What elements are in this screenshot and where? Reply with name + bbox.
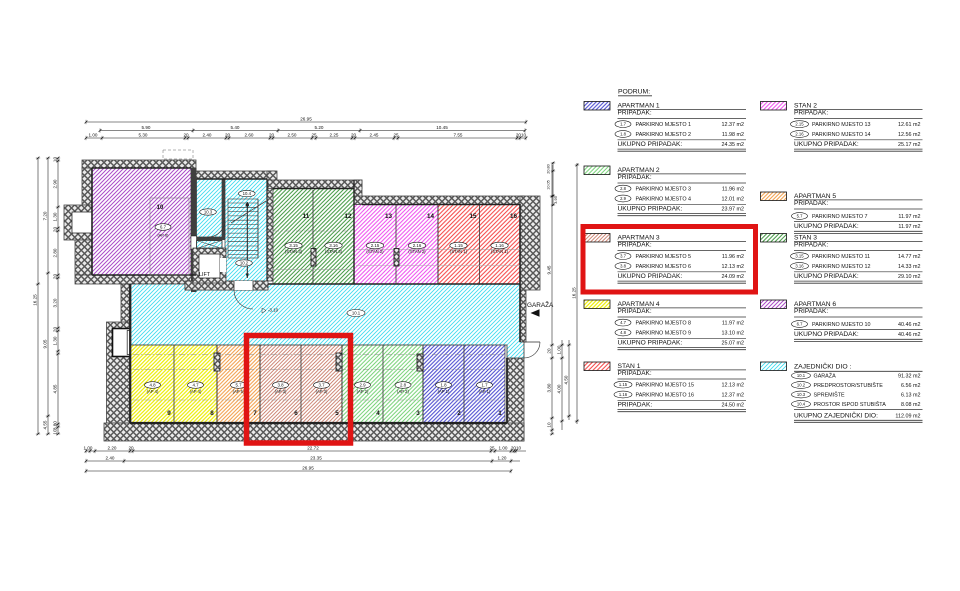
svg-text:2.20: 2.20 bbox=[108, 445, 117, 450]
svg-text:2010: 2010 bbox=[511, 445, 522, 450]
svg-text:PARKIRNO MJESTO 1: PARKIRNO MJESTO 1 bbox=[636, 122, 692, 128]
svg-text:12.37 m2: 12.37 m2 bbox=[722, 122, 744, 128]
svg-text:22.72: 22.72 bbox=[307, 445, 319, 450]
svg-text:5.7: 5.7 bbox=[235, 383, 242, 388]
svg-text:2.45: 2.45 bbox=[370, 132, 379, 137]
svg-text:25.17 m2: 25.17 m2 bbox=[898, 142, 920, 148]
svg-text:4.7: 4.7 bbox=[620, 320, 626, 325]
svg-text:20: 20 bbox=[546, 348, 551, 354]
svg-text:11.96 m2: 11.96 m2 bbox=[722, 187, 744, 193]
svg-text:(STAN 2): (STAN 2) bbox=[408, 249, 426, 254]
svg-text:3.80: 3.80 bbox=[546, 383, 551, 392]
svg-text:(AP 4): (AP 4) bbox=[190, 389, 202, 394]
svg-text:(AP 5): (AP 5) bbox=[233, 389, 245, 394]
svg-text:UKUPNO ZAJEDNIČKI DIO:: UKUPNO ZAJEDNIČKI DIO: bbox=[794, 411, 878, 420]
svg-text:24.35 m2: 24.35 m2 bbox=[722, 142, 744, 148]
svg-text:LIFT: LIFT bbox=[199, 272, 211, 278]
svg-text:10.3: 10.3 bbox=[797, 392, 806, 397]
svg-text:4.8: 4.8 bbox=[149, 383, 156, 388]
svg-text:2.40: 2.40 bbox=[106, 455, 115, 460]
svg-text:20: 20 bbox=[269, 132, 275, 137]
svg-text:(AP 3): (AP 3) bbox=[275, 389, 287, 394]
svg-text:12.13 m2: 12.13 m2 bbox=[722, 264, 744, 270]
svg-text:(STAN 2): (STAN 2) bbox=[366, 249, 384, 254]
svg-text:10.4: 10.4 bbox=[797, 402, 806, 407]
svg-text:16.25: 16.25 bbox=[32, 294, 37, 306]
svg-text:PRIPADAK:: PRIPADAK: bbox=[794, 200, 828, 207]
svg-text:20: 20 bbox=[225, 132, 231, 137]
svg-text:3.7: 3.7 bbox=[318, 383, 325, 388]
svg-text:4.85: 4.85 bbox=[52, 384, 57, 393]
svg-text:UKUPNO PRIPADAK:: UKUPNO PRIPADAK: bbox=[794, 331, 859, 338]
svg-text:2.15: 2.15 bbox=[371, 243, 380, 248]
svg-text:(AP 2): (AP 2) bbox=[357, 389, 369, 394]
svg-text:23.35: 23.35 bbox=[310, 455, 322, 460]
svg-text:PARKIRNO MJESTO 10: PARKIRNO MJESTO 10 bbox=[812, 322, 871, 328]
svg-text:PARKIRNO MJESTO 11: PARKIRNO MJESTO 11 bbox=[812, 254, 870, 260]
svg-text:PARKIRNO MJESTO 13: PARKIRNO MJESTO 13 bbox=[812, 122, 871, 128]
svg-text:7.55: 7.55 bbox=[454, 132, 463, 137]
svg-text:1.30: 1.30 bbox=[52, 336, 57, 345]
svg-text:7.20: 7.20 bbox=[42, 211, 47, 220]
svg-text:16: 16 bbox=[510, 213, 518, 220]
svg-text:10: 10 bbox=[546, 422, 551, 428]
svg-text:3.16: 3.16 bbox=[329, 243, 338, 248]
svg-text:GARAŽA: GARAŽA bbox=[814, 372, 837, 380]
svg-text:9.05: 9.05 bbox=[42, 339, 47, 348]
svg-text:(STAN 1): (STAN 1) bbox=[450, 249, 468, 254]
svg-text:PARKIRNO MJESTO 6: PARKIRNO MJESTO 6 bbox=[636, 264, 692, 270]
svg-text:16.25: 16.25 bbox=[571, 287, 576, 299]
svg-text:PRIPADAK:: PRIPADAK: bbox=[794, 308, 828, 315]
svg-text:20: 20 bbox=[183, 132, 189, 137]
svg-text:6.13 m2: 6.13 m2 bbox=[901, 393, 920, 399]
svg-text:(AP 6): (AP 6) bbox=[158, 233, 170, 238]
svg-text:10.2: 10.2 bbox=[240, 261, 249, 266]
svg-text:APARTMAN 5: APARTMAN 5 bbox=[794, 193, 836, 200]
svg-text:1.20: 1.20 bbox=[498, 455, 507, 460]
svg-text:25: 25 bbox=[489, 445, 495, 450]
svg-text:2.90: 2.90 bbox=[52, 179, 57, 188]
svg-text:1.7: 1.7 bbox=[620, 122, 626, 127]
svg-text:UKUPNO PRIPADAK:: UKUPNO PRIPADAK: bbox=[794, 223, 859, 230]
svg-text:PARKIRNO MJESTO 9: PARKIRNO MJESTO 9 bbox=[636, 331, 692, 337]
svg-text:PARKIRNO MJESTO 2: PARKIRNO MJESTO 2 bbox=[636, 132, 692, 138]
svg-text:4.8: 4.8 bbox=[620, 330, 626, 335]
svg-text:26.95: 26.95 bbox=[302, 465, 314, 470]
svg-text:20: 20 bbox=[128, 445, 134, 450]
svg-text:3.15: 3.15 bbox=[795, 254, 804, 259]
svg-text:11.96 m2: 11.96 m2 bbox=[722, 254, 744, 260]
svg-text:14: 14 bbox=[427, 213, 435, 220]
svg-text:PARKIRNO MJESTO 3: PARKIRNO MJESTO 3 bbox=[636, 187, 692, 193]
svg-text:12.56 m2: 12.56 m2 bbox=[898, 132, 920, 138]
svg-text:12.61 m2: 12.61 m2 bbox=[898, 122, 920, 128]
svg-text:6: 6 bbox=[294, 410, 298, 417]
svg-text:14.33 m2: 14.33 m2 bbox=[898, 264, 920, 270]
svg-text:PODRUM:: PODRUM: bbox=[618, 89, 650, 96]
svg-text:11: 11 bbox=[303, 213, 310, 220]
svg-text:29.10 m2: 29.10 m2 bbox=[898, 274, 920, 280]
svg-text:7: 7 bbox=[253, 410, 257, 417]
svg-text:(AP 1): (AP 1) bbox=[438, 389, 450, 394]
svg-text:11.98 m2: 11.98 m2 bbox=[722, 132, 744, 138]
svg-text:PARKIRNO MJESTO 4: PARKIRNO MJESTO 4 bbox=[636, 197, 692, 203]
svg-text:(AP 1): (AP 1) bbox=[479, 389, 491, 394]
svg-text:1.16: 1.16 bbox=[495, 243, 504, 248]
svg-text:15: 15 bbox=[469, 213, 477, 220]
svg-text:2: 2 bbox=[457, 410, 461, 417]
svg-text:PRIPADAK:: PRIPADAK: bbox=[618, 308, 652, 315]
svg-text:6.7: 6.7 bbox=[797, 322, 803, 327]
svg-text:91.32 m2: 91.32 m2 bbox=[898, 374, 920, 380]
svg-text:1.15: 1.15 bbox=[454, 243, 463, 248]
svg-text:25: 25 bbox=[311, 132, 317, 137]
svg-text:13: 13 bbox=[385, 213, 393, 220]
svg-text:(AP 3): (AP 3) bbox=[316, 389, 328, 394]
svg-text:10.4: 10.4 bbox=[243, 191, 252, 196]
svg-text:2.80: 2.80 bbox=[52, 248, 57, 257]
svg-text:20: 20 bbox=[52, 274, 57, 280]
svg-text:1.00: 1.00 bbox=[499, 445, 508, 450]
svg-text:10.2: 10.2 bbox=[797, 383, 806, 388]
svg-text:1.16: 1.16 bbox=[619, 392, 628, 397]
svg-text:-3.10: -3.10 bbox=[268, 308, 279, 313]
svg-text:1.15: 1.15 bbox=[619, 382, 628, 387]
svg-text:3.95: 3.95 bbox=[554, 196, 558, 203]
svg-text:1: 1 bbox=[498, 410, 502, 417]
svg-text:3.20: 3.20 bbox=[52, 298, 57, 307]
svg-text:PRIPADAK:: PRIPADAK: bbox=[794, 242, 828, 249]
svg-text:STAN 3: STAN 3 bbox=[794, 234, 817, 241]
svg-text:PROSTOR ISPOD STUBIŠTA: PROSTOR ISPOD STUBIŠTA bbox=[814, 401, 887, 408]
svg-text:3.80: 3.80 bbox=[52, 421, 57, 430]
svg-text:24.50 m2: 24.50 m2 bbox=[722, 402, 744, 408]
svg-text:2.9: 2.9 bbox=[359, 383, 366, 388]
svg-text:(AP 2): (AP 2) bbox=[397, 389, 409, 394]
svg-text:2.15: 2.15 bbox=[795, 122, 804, 127]
svg-text:11.97 m2: 11.97 m2 bbox=[898, 224, 920, 230]
svg-text:APARTMAN 1: APARTMAN 1 bbox=[618, 102, 660, 109]
svg-text:10: 10 bbox=[157, 205, 164, 211]
svg-text:2.25: 2.25 bbox=[330, 132, 339, 137]
svg-text:2.40: 2.40 bbox=[203, 132, 212, 137]
svg-text:1.7: 1.7 bbox=[481, 383, 488, 388]
svg-text:PRIPADAK:: PRIPADAK: bbox=[618, 242, 652, 249]
svg-text:APARTMAN 3: APARTMAN 3 bbox=[618, 234, 660, 241]
svg-text:PARKIRNO MJESTO 16: PARKIRNO MJESTO 16 bbox=[636, 393, 695, 399]
svg-text:10.1: 10.1 bbox=[352, 311, 361, 316]
svg-text:4.7: 4.7 bbox=[192, 383, 199, 388]
svg-text:PRIPADAK:: PRIPADAK: bbox=[794, 110, 828, 117]
svg-text:10.1: 10.1 bbox=[797, 373, 806, 378]
svg-text:4.00: 4.00 bbox=[556, 384, 561, 393]
svg-text:1.00: 1.00 bbox=[556, 345, 561, 354]
svg-text:(STAN 3): (STAN 3) bbox=[325, 249, 343, 254]
svg-text:26.95: 26.95 bbox=[300, 116, 312, 121]
svg-text:PREDPROSTOR/STUBIŠTE: PREDPROSTOR/STUBIŠTE bbox=[814, 382, 884, 389]
svg-text:23.97 m2: 23.97 m2 bbox=[722, 206, 744, 212]
svg-text:APARTMAN 2: APARTMAN 2 bbox=[618, 167, 660, 174]
svg-text:5.20: 5.20 bbox=[315, 125, 324, 130]
svg-text:1.00: 1.00 bbox=[89, 132, 98, 137]
svg-text:11.97 m2: 11.97 m2 bbox=[722, 321, 744, 327]
svg-text:12.37 m2: 12.37 m2 bbox=[722, 393, 744, 399]
svg-text:6.56 m2: 6.56 m2 bbox=[901, 383, 920, 389]
svg-text:APARTMAN 4: APARTMAN 4 bbox=[618, 301, 660, 308]
svg-text:4: 4 bbox=[376, 410, 380, 417]
svg-text:UKUPNO PRIPADAK:: UKUPNO PRIPADAK: bbox=[618, 205, 683, 212]
svg-text:UKUPNO PRIPADAK:: UKUPNO PRIPADAK: bbox=[794, 273, 859, 280]
svg-text:3: 3 bbox=[416, 410, 420, 417]
svg-text:1.8: 1.8 bbox=[440, 383, 447, 388]
svg-text:PRIPADAK:: PRIPADAK: bbox=[618, 174, 652, 181]
svg-text:112.09 m2: 112.09 m2 bbox=[895, 414, 920, 420]
svg-text:20.80: 20.80 bbox=[547, 164, 551, 174]
svg-text:13.10 m2: 13.10 m2 bbox=[722, 331, 744, 337]
svg-text:9.45: 9.45 bbox=[546, 265, 551, 274]
svg-text:PRIPADAK:: PRIPADAK: bbox=[618, 370, 652, 377]
svg-text:2.16: 2.16 bbox=[795, 132, 804, 137]
svg-text:PARKIRNO MJESTO 12: PARKIRNO MJESTO 12 bbox=[812, 264, 871, 270]
svg-text:5: 5 bbox=[335, 410, 339, 417]
svg-text:UKUPNO PRIPADAK:: UKUPNO PRIPADAK: bbox=[618, 141, 683, 148]
svg-text:UKUPNO PRIPADAK:: UKUPNO PRIPADAK: bbox=[794, 141, 859, 148]
svg-text:PARKIRNO MJESTO 8: PARKIRNO MJESTO 8 bbox=[636, 321, 692, 327]
svg-text:1.30: 1.30 bbox=[52, 212, 57, 221]
svg-text:5.90: 5.90 bbox=[142, 125, 151, 130]
svg-text:4.50: 4.50 bbox=[563, 375, 568, 384]
svg-text:2.8: 2.8 bbox=[620, 186, 626, 191]
svg-text:2.16: 2.16 bbox=[413, 243, 422, 248]
svg-text:9: 9 bbox=[167, 410, 171, 417]
svg-text:10.3: 10.3 bbox=[204, 210, 213, 215]
svg-text:12: 12 bbox=[344, 213, 352, 220]
svg-text:3.8: 3.8 bbox=[620, 264, 626, 269]
svg-text:5.30: 5.30 bbox=[139, 132, 148, 137]
svg-text:14.77 m2: 14.77 m2 bbox=[898, 254, 920, 260]
svg-text:2.9: 2.9 bbox=[620, 196, 626, 201]
svg-text:SPREMIŠTE: SPREMIŠTE bbox=[814, 392, 846, 399]
svg-text:PARKIRNO MJESTO 5: PARKIRNO MJESTO 5 bbox=[636, 254, 692, 260]
svg-text:5.40: 5.40 bbox=[231, 125, 240, 130]
svg-text:UKUPNO PRIPADAK:: UKUPNO PRIPADAK: bbox=[618, 273, 683, 280]
svg-text:25.07 m2: 25.07 m2 bbox=[722, 340, 744, 346]
svg-text:PRIPADAK:: PRIPADAK: bbox=[618, 401, 653, 408]
svg-text:24.09 m2: 24.09 m2 bbox=[722, 274, 744, 280]
svg-text:3.15: 3.15 bbox=[289, 243, 298, 248]
svg-text:12.13 m2: 12.13 m2 bbox=[722, 383, 744, 389]
svg-text:(AP 4): (AP 4) bbox=[147, 389, 159, 394]
svg-text:ZAJEDNIČKI DIO :: ZAJEDNIČKI DIO : bbox=[794, 362, 852, 371]
svg-text:(STAN 1): (STAN 1) bbox=[491, 249, 509, 254]
svg-text:11.97 m2: 11.97 m2 bbox=[898, 214, 920, 220]
svg-text:1.00: 1.00 bbox=[84, 445, 93, 450]
svg-text:2.60: 2.60 bbox=[245, 132, 254, 137]
svg-text:10: 10 bbox=[52, 429, 57, 435]
svg-text:12.01 m2: 12.01 m2 bbox=[722, 197, 744, 203]
svg-text:10.05: 10.05 bbox=[547, 180, 551, 190]
svg-text:10.45: 10.45 bbox=[436, 125, 448, 130]
svg-text:(STAN 3): (STAN 3) bbox=[285, 249, 303, 254]
svg-text:3.8: 3.8 bbox=[277, 383, 284, 388]
svg-text:STAN 1: STAN 1 bbox=[618, 363, 641, 370]
svg-text:25: 25 bbox=[393, 132, 399, 137]
svg-text:PARKIRNO MJESTO 14: PARKIRNO MJESTO 14 bbox=[812, 132, 871, 138]
svg-text:APARTMAN 6: APARTMAN 6 bbox=[794, 301, 836, 308]
svg-text:3.7: 3.7 bbox=[620, 254, 626, 259]
svg-text:GARAŽA: GARAŽA bbox=[527, 300, 554, 309]
svg-text:8: 8 bbox=[210, 410, 214, 417]
svg-text:2010: 2010 bbox=[516, 132, 527, 137]
svg-text:6.7: 6.7 bbox=[160, 225, 167, 230]
svg-text:2.8: 2.8 bbox=[400, 383, 407, 388]
svg-text:2.50: 2.50 bbox=[288, 132, 297, 137]
svg-text:8.08 m2: 8.08 m2 bbox=[901, 402, 920, 408]
svg-text:3.16: 3.16 bbox=[795, 264, 804, 269]
svg-text:PARKIRNO MJESTO 15: PARKIRNO MJESTO 15 bbox=[636, 383, 695, 389]
svg-text:20: 20 bbox=[351, 132, 357, 137]
svg-text:5.7: 5.7 bbox=[797, 214, 803, 219]
svg-text:PARKIRNO MJESTO 7: PARKIRNO MJESTO 7 bbox=[812, 214, 868, 220]
svg-text:4.55: 4.55 bbox=[42, 420, 47, 429]
svg-text:STAN 2: STAN 2 bbox=[794, 102, 817, 109]
svg-text:40.46 m2: 40.46 m2 bbox=[898, 322, 920, 328]
svg-text:UKUPNO PRIPADAK:: UKUPNO PRIPADAK: bbox=[618, 339, 683, 346]
svg-text:20: 20 bbox=[52, 227, 57, 233]
svg-text:40.46 m2: 40.46 m2 bbox=[898, 332, 920, 338]
svg-text:10: 10 bbox=[52, 157, 57, 163]
svg-text:PRIPADAK:: PRIPADAK: bbox=[618, 110, 652, 117]
svg-text:20: 20 bbox=[52, 327, 57, 333]
svg-text:1.8: 1.8 bbox=[620, 132, 626, 137]
